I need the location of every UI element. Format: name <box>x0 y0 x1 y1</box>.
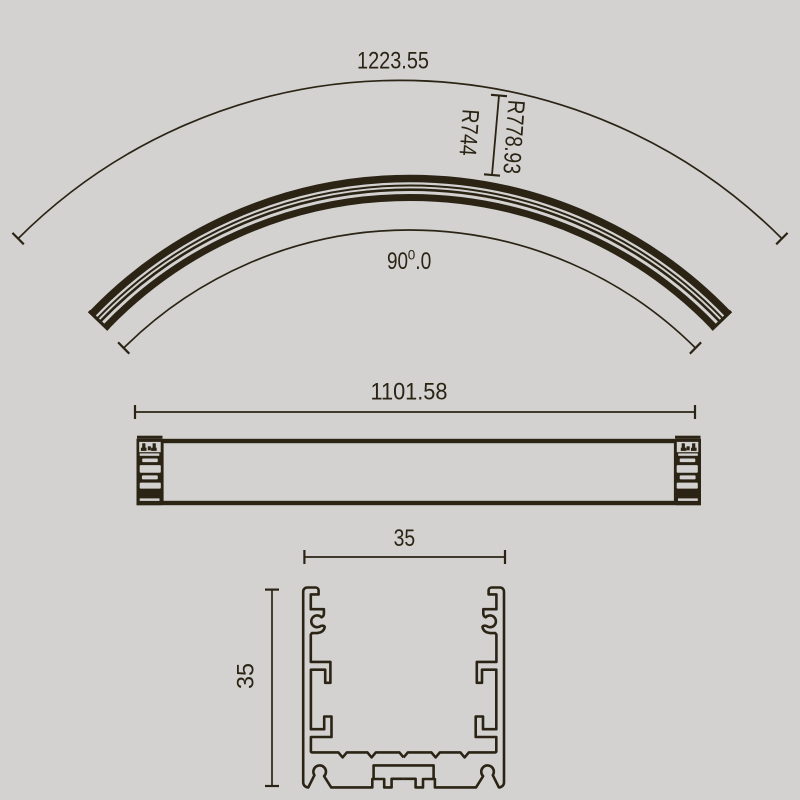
svg-text:1101.58: 1101.58 <box>371 378 448 405</box>
svg-text:1223.55: 1223.55 <box>357 48 429 75</box>
svg-text:R744: R744 <box>454 108 484 156</box>
svg-text:35: 35 <box>233 663 260 689</box>
svg-text:35: 35 <box>394 525 416 552</box>
svg-text:R778.93: R778.93 <box>497 99 529 175</box>
